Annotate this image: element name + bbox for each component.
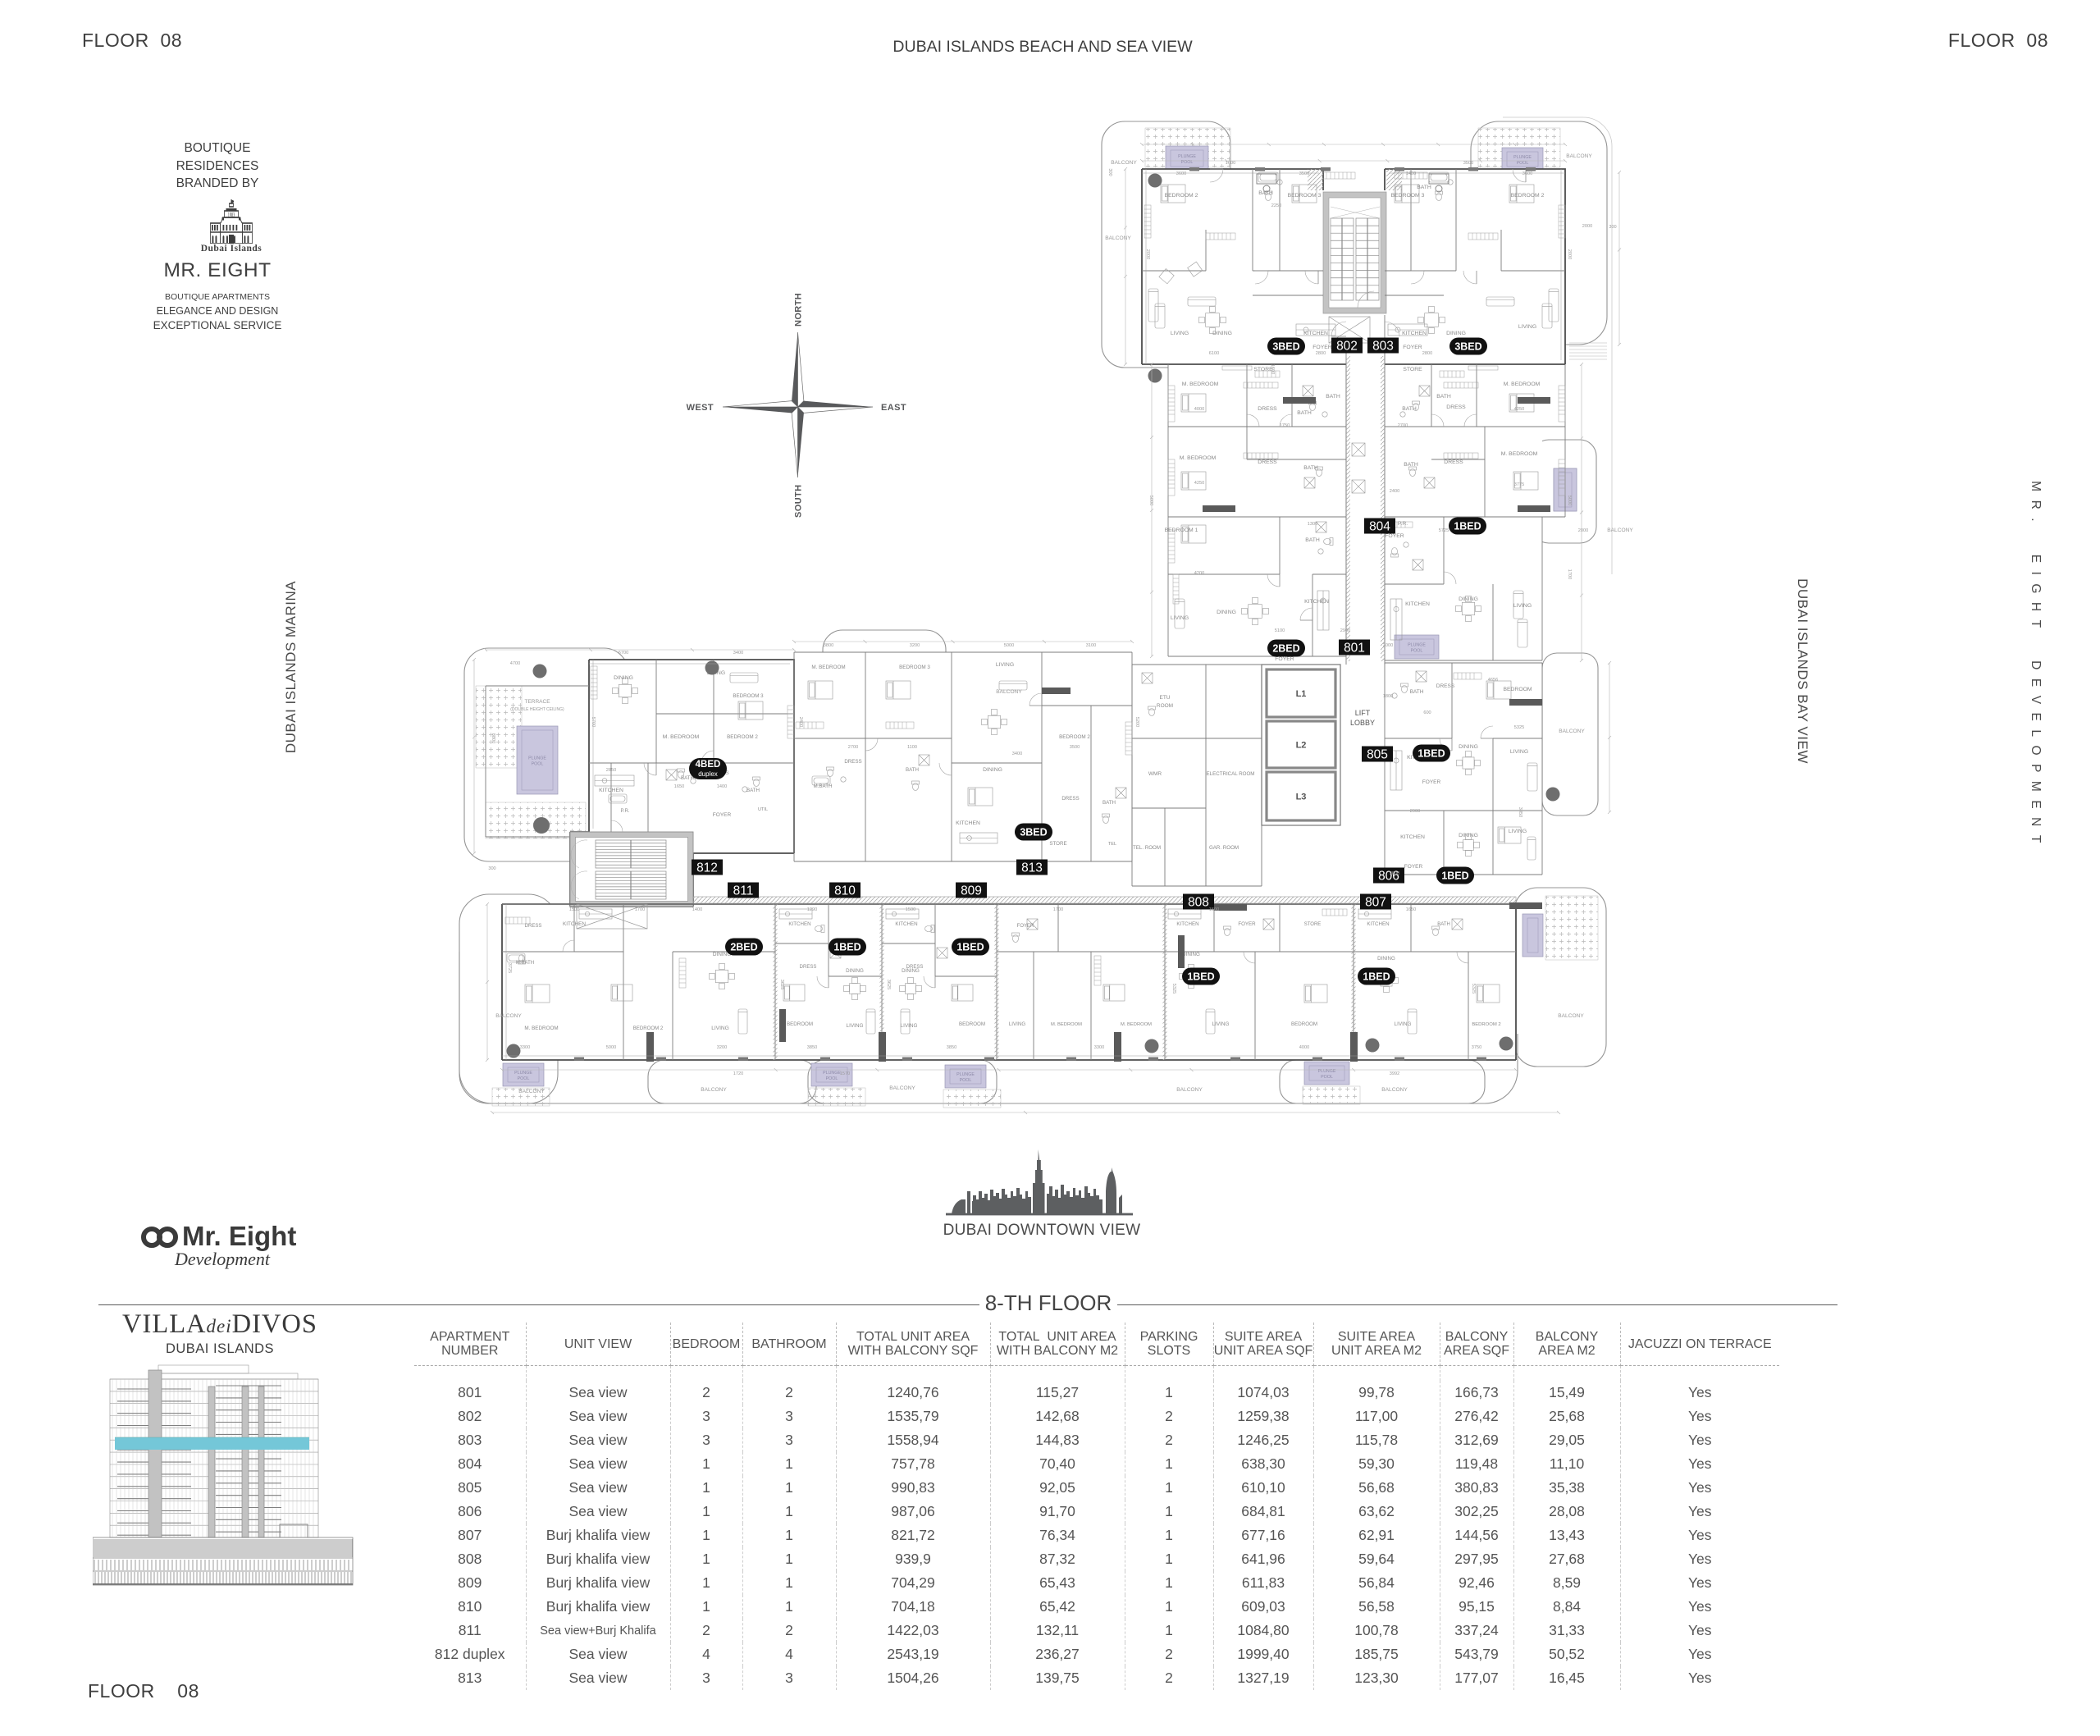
svg-text:BEDROOM 3: BEDROOM 3 — [1288, 193, 1322, 199]
svg-text:KITCHEN: KITCHEN — [1402, 331, 1427, 336]
svg-text:803: 803 — [1372, 340, 1394, 354]
svg-text:DRESS: DRESS — [1258, 459, 1277, 465]
svg-text:BATH: BATH — [1102, 800, 1116, 806]
svg-text:1400: 1400 — [717, 784, 727, 789]
svg-text:LIVING: LIVING — [1395, 1021, 1412, 1027]
svg-text:3200: 3200 — [717, 1045, 727, 1050]
svg-text:FOYER: FOYER — [713, 812, 732, 818]
svg-text:BEDROOM 2: BEDROOM 2 — [1472, 1022, 1500, 1027]
svg-text:1BED: 1BED — [833, 942, 861, 953]
svg-text:5325: 5325 — [1514, 725, 1524, 730]
svg-text:1500: 1500 — [569, 907, 579, 912]
svg-text:POOL: POOL — [1321, 1075, 1333, 1080]
svg-text:KITCHEN: KITCHEN — [1303, 331, 1328, 336]
svg-text:1BED: 1BED — [1441, 870, 1468, 882]
svg-text:6100: 6100 — [1209, 351, 1219, 356]
svg-text:3600: 3600 — [1176, 171, 1186, 176]
svg-text:BATH: BATH — [1297, 410, 1312, 416]
svg-text:4250: 4250 — [1514, 407, 1524, 412]
svg-text:BATH: BATH — [1305, 537, 1320, 543]
svg-text:Mr. Eight: Mr. Eight — [182, 1221, 296, 1251]
svg-text:4250: 4250 — [1194, 481, 1204, 486]
svg-text:2BED: 2BED — [730, 942, 757, 953]
svg-text:DINING: DINING — [1212, 331, 1232, 336]
svg-text:duplex: duplex — [698, 770, 718, 778]
svg-text:M. BEDROOM: M. BEDROOM — [1121, 1022, 1152, 1027]
svg-text:1600: 1600 — [1270, 364, 1275, 374]
svg-text:DINING: DINING — [846, 968, 864, 974]
svg-text:300: 300 — [488, 866, 495, 871]
svg-text:2000: 2000 — [1567, 249, 1572, 259]
svg-text:1570: 1570 — [840, 1071, 850, 1076]
svg-text:DRESS: DRESS — [1258, 406, 1277, 412]
svg-text:LIVING: LIVING — [1509, 829, 1527, 834]
svg-text:BEDROOM 2: BEDROOM 2 — [633, 1026, 664, 1031]
svg-text:4BED: 4BED — [696, 760, 721, 770]
svg-text:STORE: STORE — [1049, 841, 1066, 847]
svg-text:812: 812 — [696, 861, 718, 875]
svg-text:BEDROOM 2: BEDROOM 2 — [1511, 193, 1545, 199]
svg-text:LIVING: LIVING — [847, 1023, 864, 1029]
svg-text:FOYER: FOYER — [1238, 921, 1256, 927]
svg-text:3200: 3200 — [910, 643, 920, 648]
svg-text:BALCONY: BALCONY — [1105, 235, 1131, 241]
svg-text:L1: L1 — [1296, 689, 1307, 699]
svg-text:KITCHEN: KITCHEN — [895, 921, 917, 927]
svg-text:4200: 4200 — [1194, 571, 1204, 576]
svg-text:LIFT: LIFT — [1355, 709, 1371, 717]
svg-text:M. BEDROOM: M. BEDROOM — [1051, 1022, 1082, 1027]
svg-text:2700: 2700 — [1398, 423, 1408, 428]
svg-text:2000: 2000 — [1582, 224, 1592, 229]
svg-text:810: 810 — [834, 884, 856, 898]
svg-text:4000: 4000 — [1194, 407, 1204, 412]
svg-text:5725: 5725 — [1439, 528, 1449, 533]
svg-text:M.BATH: M.BATH — [814, 783, 833, 789]
svg-text:KITCHEN: KITCHEN — [1176, 921, 1198, 927]
svg-text:P.R.: P.R. — [621, 809, 630, 814]
svg-text:PLUNGE: PLUNGE — [528, 756, 546, 761]
svg-text:KITCHEN: KITCHEN — [1367, 921, 1389, 927]
svg-text:LIVING: LIVING — [1009, 1021, 1025, 1027]
svg-text:DRESS: DRESS — [1444, 459, 1463, 465]
svg-text:1720: 1720 — [733, 1071, 743, 1076]
svg-text:1BED: 1BED — [1363, 971, 1390, 983]
svg-text:3800: 3800 — [824, 643, 833, 648]
svg-text:LIVING: LIVING — [1171, 331, 1189, 336]
svg-text:BEDROOM 2: BEDROOM 2 — [1059, 734, 1090, 740]
svg-text:DINING: DINING — [1217, 610, 1236, 615]
svg-text:BATH: BATH — [1326, 394, 1340, 400]
svg-text:2400: 2400 — [798, 717, 803, 727]
svg-text:1BED: 1BED — [1417, 748, 1445, 760]
svg-text:FOYER: FOYER — [1275, 656, 1294, 662]
svg-text:1500: 1500 — [906, 907, 915, 912]
svg-text:PLUNGE: PLUNGE — [514, 1071, 532, 1076]
svg-text:2900: 2900 — [1340, 628, 1350, 633]
svg-text:1400: 1400 — [1406, 171, 1416, 176]
svg-text:M. BEDROOM: M. BEDROOM — [811, 665, 845, 670]
svg-text:6700: 6700 — [619, 651, 628, 656]
svg-text:TEL: TEL — [1108, 842, 1116, 847]
svg-text:BALCONY: BALCONY — [1607, 528, 1633, 533]
svg-text:3775: 3775 — [1514, 482, 1524, 487]
svg-text:8800: 8800 — [491, 733, 495, 743]
svg-text:BATH: BATH — [1436, 394, 1451, 400]
svg-text:3BED: 3BED — [1454, 341, 1481, 353]
svg-text:2800: 2800 — [1316, 351, 1326, 356]
svg-text:5000: 5000 — [606, 1045, 616, 1050]
svg-text:1400: 1400 — [692, 907, 702, 912]
svg-text:POOL: POOL — [518, 1076, 530, 1081]
svg-text:BALCONY: BALCONY — [518, 1089, 545, 1094]
svg-text:PLUNGE: PLUNGE — [1513, 155, 1532, 160]
svg-text:BALCONY: BALCONY — [1176, 1087, 1203, 1093]
svg-text:2800: 2800 — [1390, 871, 1399, 876]
svg-text:POOL: POOL — [1517, 161, 1529, 166]
svg-text:3992: 3992 — [1390, 1071, 1399, 1076]
svg-text:3100: 3100 — [1086, 643, 1096, 648]
svg-text:1700: 1700 — [1053, 907, 1063, 912]
svg-text:808: 808 — [1188, 896, 1209, 910]
svg-text:3300: 3300 — [1094, 1045, 1104, 1050]
svg-text:PLUNGE: PLUNGE — [1408, 643, 1426, 648]
svg-text:DRESS: DRESS — [1436, 683, 1455, 689]
svg-text:2900: 2900 — [1410, 809, 1420, 814]
svg-text:2850: 2850 — [606, 768, 616, 773]
svg-text:DINING: DINING — [1446, 331, 1466, 336]
svg-text:BEDROOM: BEDROOM — [959, 1021, 985, 1027]
svg-text:1BED: 1BED — [1454, 521, 1481, 532]
svg-text:3850: 3850 — [947, 1045, 956, 1050]
svg-text:(DOUBLE HEIGHT CEILING): (DOUBLE HEIGHT CEILING) — [510, 707, 564, 712]
svg-text:4656: 4656 — [1488, 678, 1498, 683]
svg-text:LIVING: LIVING — [996, 662, 1014, 668]
svg-text:BEDROOM 3: BEDROOM 3 — [899, 665, 930, 670]
svg-text:BATH: BATH — [1402, 406, 1417, 412]
svg-text:DINING: DINING — [1459, 744, 1478, 750]
svg-text:3400: 3400 — [1012, 752, 1022, 756]
svg-text:BALCONY: BALCONY — [1111, 160, 1137, 166]
svg-text:DRESS: DRESS — [800, 965, 817, 970]
svg-text:3850: 3850 — [1518, 807, 1522, 817]
svg-text:BEDROOM 2: BEDROOM 2 — [1165, 193, 1198, 199]
svg-text:LOBBY: LOBBY — [1350, 719, 1375, 727]
svg-text:DINING: DINING — [1182, 952, 1200, 957]
svg-text:1600: 1600 — [1226, 161, 1235, 166]
svg-text:2400: 2400 — [1390, 489, 1399, 494]
svg-text:DRESS: DRESS — [525, 924, 542, 929]
svg-text:1100: 1100 — [907, 745, 917, 750]
svg-text:DINING: DINING — [614, 675, 633, 681]
svg-text:813: 813 — [1021, 861, 1043, 875]
svg-text:BEDROOM: BEDROOM — [1291, 1021, 1317, 1027]
svg-text:POOL: POOL — [1411, 649, 1423, 654]
svg-text:M. BEDROOM: M. BEDROOM — [1504, 381, 1541, 387]
svg-text:DINING: DINING — [983, 767, 1002, 773]
svg-text:BATH: BATH — [746, 788, 760, 793]
svg-text:BATH: BATH — [681, 775, 694, 781]
svg-text:LIVING: LIVING — [1212, 1021, 1230, 1027]
svg-text:5000: 5000 — [1148, 496, 1153, 505]
svg-text:BALCONY: BALCONY — [701, 1087, 727, 1093]
svg-text:TERRACE: TERRACE — [524, 699, 550, 705]
svg-text:Development: Development — [174, 1249, 271, 1269]
svg-text:2000: 2000 — [1145, 249, 1150, 259]
svg-text:POOL: POOL — [960, 1078, 972, 1083]
svg-text:BALCONY: BALCONY — [495, 1013, 522, 1019]
svg-text:3BED: 3BED — [1020, 827, 1047, 838]
svg-text:BALCONY: BALCONY — [1558, 1013, 1584, 1019]
svg-text:3500: 3500 — [1070, 745, 1080, 750]
svg-text:1650: 1650 — [1406, 907, 1416, 912]
svg-text:2800: 2800 — [1422, 351, 1432, 356]
svg-text:L2: L2 — [1296, 741, 1307, 751]
svg-text:BATH: BATH — [1417, 185, 1431, 190]
svg-text:LIVING: LIVING — [711, 1026, 729, 1031]
svg-text:805: 805 — [1367, 748, 1388, 762]
svg-text:BALCONY: BALCONY — [1381, 1087, 1408, 1093]
svg-text:3600: 3600 — [1522, 171, 1532, 176]
svg-text:2250: 2250 — [1271, 203, 1281, 208]
svg-text:POOL: POOL — [826, 1076, 838, 1081]
svg-text:5100: 5100 — [1275, 628, 1285, 633]
svg-text:1BED: 1BED — [956, 942, 984, 953]
svg-text:WMR: WMR — [1148, 771, 1162, 777]
svg-text:BEDROOM 2: BEDROOM 2 — [727, 734, 758, 740]
svg-text:300: 300 — [1609, 225, 1616, 230]
svg-text:GAR. ROOM: GAR. ROOM — [1209, 845, 1239, 851]
svg-text:4000: 4000 — [1299, 1045, 1309, 1050]
svg-text:3850: 3850 — [807, 1045, 817, 1050]
svg-text:600: 600 — [1423, 710, 1431, 715]
svg-text:3BED: 3BED — [1272, 341, 1299, 353]
svg-text:KITCHEN: KITCHEN — [599, 788, 623, 793]
svg-text:LIVING: LIVING — [1518, 324, 1536, 330]
svg-text:M. BEDROOM: M. BEDROOM — [1182, 381, 1219, 387]
svg-text:1800: 1800 — [1383, 694, 1393, 699]
svg-text:FOYER: FOYER — [1422, 779, 1441, 785]
svg-text:BEDROOM 3: BEDROOM 3 — [733, 693, 764, 699]
svg-text:LIVING: LIVING — [1171, 615, 1189, 621]
svg-text:TEL. ROOM: TEL. ROOM — [1133, 845, 1161, 851]
svg-text:DRESS: DRESS — [844, 759, 861, 765]
svg-text:ETU: ETU — [1160, 695, 1171, 701]
svg-text:1500: 1500 — [1209, 907, 1219, 912]
svg-text:KITCHEN: KITCHEN — [1400, 834, 1425, 840]
svg-text:5700: 5700 — [591, 717, 596, 727]
svg-text:2000: 2000 — [1578, 528, 1588, 533]
svg-text:809: 809 — [961, 884, 982, 898]
svg-text:LIVING: LIVING — [1513, 603, 1532, 609]
svg-text:PLUNGE: PLUNGE — [1178, 154, 1196, 159]
svg-text:1300: 1300 — [1308, 522, 1317, 527]
svg-text:1700: 1700 — [1567, 569, 1572, 579]
svg-text:DINING: DINING — [902, 968, 920, 974]
svg-text:1290: 1290 — [807, 907, 817, 912]
svg-text:ELECTRICAL ROOM: ELECTRICAL ROOM — [1207, 771, 1255, 777]
svg-text:FOYER: FOYER — [1312, 345, 1332, 350]
svg-text:5000: 5000 — [1004, 643, 1014, 648]
svg-text:3500: 3500 — [1463, 161, 1473, 166]
svg-text:FOYER: FOYER — [1385, 533, 1404, 539]
svg-text:BEDROOM 3: BEDROOM 3 — [1391, 193, 1425, 199]
svg-text:DRESS: DRESS — [1061, 796, 1079, 802]
svg-text:M. BEDROOM: M. BEDROOM — [524, 1026, 558, 1031]
svg-text:1BED: 1BED — [1187, 971, 1214, 983]
svg-text:BEDROOM: BEDROOM — [1503, 687, 1532, 692]
svg-text:BATH: BATH — [1410, 689, 1424, 695]
svg-text:POOL: POOL — [532, 762, 544, 767]
svg-text:FOYER: FOYER — [1404, 864, 1423, 870]
svg-text:BALCONY: BALCONY — [889, 1085, 915, 1091]
svg-text:300: 300 — [1107, 168, 1112, 176]
svg-text:DINING: DINING — [1459, 596, 1478, 602]
svg-text:BALCONY: BALCONY — [996, 689, 1022, 695]
svg-text:3300: 3300 — [520, 1045, 530, 1050]
svg-text:DINING: DINING — [1377, 956, 1395, 962]
svg-text:3625: 3625 — [779, 980, 784, 989]
svg-text:5000: 5000 — [1567, 496, 1572, 505]
svg-text:KITCHEN: KITCHEN — [563, 921, 586, 927]
svg-text:811: 811 — [733, 884, 754, 898]
svg-text:5200: 5200 — [1134, 717, 1139, 727]
svg-text:2700: 2700 — [848, 745, 858, 750]
svg-text:L3: L3 — [1296, 793, 1307, 802]
svg-text:4700: 4700 — [510, 661, 520, 666]
svg-text:M. BEDROOM: M. BEDROOM — [663, 734, 700, 740]
svg-text:ROOM: ROOM — [1157, 703, 1173, 709]
svg-text:BEDROOM: BEDROOM — [787, 1021, 813, 1027]
svg-text:804: 804 — [1369, 520, 1390, 534]
svg-text:5325: 5325 — [1471, 984, 1476, 994]
svg-text:PLUNGE: PLUNGE — [823, 1071, 841, 1076]
svg-text:KITCHEN: KITCHEN — [788, 921, 810, 927]
svg-text:UTIL: UTIL — [758, 807, 768, 812]
svg-text:LIVING: LIVING — [1510, 749, 1528, 755]
svg-text:KITCHEN: KITCHEN — [956, 820, 980, 826]
svg-text:STORE: STORE — [1403, 367, 1422, 372]
svg-text:3725: 3725 — [507, 963, 512, 973]
svg-text:BATH: BATH — [906, 767, 919, 773]
svg-text:2BED: 2BED — [1272, 643, 1299, 655]
svg-text:DINING: DINING — [1459, 833, 1478, 838]
svg-text:3400: 3400 — [733, 651, 743, 656]
svg-text:3750: 3750 — [1472, 1045, 1481, 1050]
svg-text:3500: 3500 — [1299, 171, 1309, 176]
svg-text:DRESS: DRESS — [1446, 404, 1466, 410]
svg-text:3625: 3625 — [886, 980, 891, 989]
svg-text:LIVING: LIVING — [901, 1023, 918, 1029]
svg-text:M. BEDROOM: M. BEDROOM — [1501, 451, 1538, 457]
svg-text:BALCONY: BALCONY — [1566, 153, 1592, 159]
svg-text:5325: 5325 — [1171, 984, 1176, 994]
svg-text:KITCHEN: KITCHEN — [1405, 601, 1430, 607]
svg-text:1650: 1650 — [674, 784, 684, 789]
svg-text:807: 807 — [1365, 896, 1386, 910]
svg-text:801: 801 — [1344, 642, 1365, 656]
svg-text:802: 802 — [1336, 340, 1358, 354]
svg-text:BALCONY: BALCONY — [1559, 729, 1585, 734]
svg-text:PLUNGE: PLUNGE — [956, 1072, 975, 1077]
svg-text:M. BEDROOM: M. BEDROOM — [1180, 455, 1217, 461]
svg-text:1750: 1750 — [1280, 423, 1290, 428]
svg-text:STORE: STORE — [1304, 922, 1322, 927]
svg-text:FOYER: FOYER — [1403, 345, 1422, 350]
svg-text:2000: 2000 — [1383, 643, 1393, 648]
svg-text:1700: 1700 — [635, 907, 645, 912]
